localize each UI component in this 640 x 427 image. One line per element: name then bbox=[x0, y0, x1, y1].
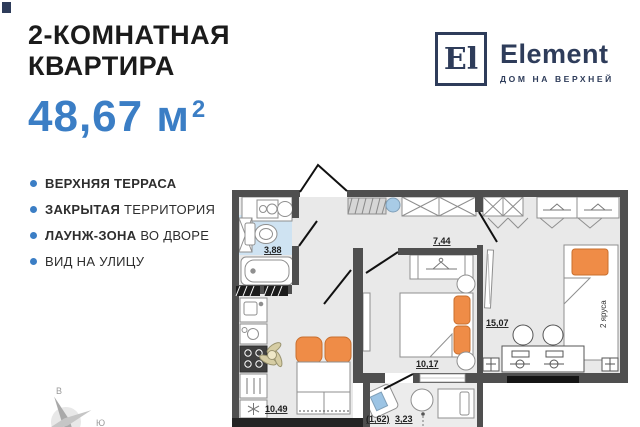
bullet-icon bbox=[30, 206, 37, 213]
hallway-area-label: 7,44 bbox=[433, 236, 451, 246]
nightstand-icon bbox=[457, 275, 475, 293]
logo-name: Element bbox=[500, 41, 614, 68]
feature-list: ВЕРХНЯЯ ТЕРРАСА ЗАКРЫТАЯ ТЕРРИТОРИЯ ЛАУН… bbox=[30, 170, 215, 274]
feature-bold: ВЕРХНЯЯ ТЕРРАСА bbox=[45, 176, 176, 191]
bunk-bed-label: 2 яруса bbox=[599, 300, 608, 328]
hallway bbox=[348, 197, 476, 216]
desk-chair-icon bbox=[543, 325, 563, 345]
window-band bbox=[507, 376, 579, 383]
feature-rest: ТЕРРИТОРИЯ bbox=[120, 202, 215, 217]
page-title: 2-КОМНАТНАЯ КВАРТИРА bbox=[28, 20, 230, 82]
pillow-icon bbox=[454, 326, 470, 354]
logo-text-block: Element ДОМ НА ВЕРХНЕЙ bbox=[500, 32, 614, 84]
title-line2: КВАРТИРА bbox=[28, 51, 230, 82]
area-value: 48,67 м bbox=[28, 92, 190, 141]
nightstand-icon bbox=[457, 352, 475, 370]
balcony-area-label: 3,23 bbox=[395, 414, 413, 424]
brand-logo: El Element ДОМ НА ВЕРХНЕЙ bbox=[435, 32, 614, 86]
dining-table-icon bbox=[297, 362, 350, 394]
feature-rest: ВИД НА УЛИЦУ bbox=[45, 254, 144, 269]
feature-item-closed-territory: ЗАКРЫТАЯ ТЕРРИТОРИЯ bbox=[30, 196, 215, 222]
kitchen-chair-icon bbox=[325, 337, 351, 363]
closet-hanger-icon bbox=[537, 197, 577, 218]
logo-box: El bbox=[435, 32, 487, 86]
title-line1: 2-КОМНАТНАЯ bbox=[28, 20, 230, 51]
bedroom-panel-icon bbox=[363, 293, 370, 351]
balcony-table-icon bbox=[411, 389, 433, 411]
radiator-icon bbox=[483, 358, 499, 371]
compass-rose: В Ю bbox=[28, 380, 112, 427]
closet-hanger-icon bbox=[577, 197, 619, 218]
area-superscript: 2 bbox=[192, 96, 206, 123]
bedroom-window bbox=[420, 374, 465, 382]
feature-item-street-view: ВИД НА УЛИЦУ bbox=[30, 248, 215, 274]
kitchen-area-label: 10,49 bbox=[265, 404, 288, 414]
flyer-page: 2-КОМНАТНАЯ КВАРТИРА 48,67 м2 El Element… bbox=[0, 0, 640, 427]
entrance-door-icon bbox=[300, 165, 347, 192]
logo-mark: El bbox=[444, 42, 478, 77]
logo-tagline: ДОМ НА ВЕРХНЕЙ bbox=[500, 74, 614, 84]
bedroom-area-label: 10,17 bbox=[416, 359, 439, 369]
bathroom-area-label: 3,88 bbox=[264, 245, 282, 255]
bathroom-sink-icon bbox=[278, 202, 293, 217]
compass-east-label: В bbox=[56, 386, 62, 396]
feature-item-terrace: ВЕРХНЯЯ ТЕРРАСА bbox=[30, 170, 215, 196]
apartment-area: 48,67 м2 bbox=[28, 92, 206, 142]
kitchen-chair-icon bbox=[296, 337, 322, 363]
desk-icon bbox=[502, 346, 584, 372]
bullet-icon bbox=[30, 232, 37, 239]
toilet-icon bbox=[245, 223, 255, 245]
feature-bold: ЛАУНЖ-ЗОНА bbox=[45, 228, 136, 243]
bullet-icon bbox=[30, 258, 37, 265]
compass-south-label: Ю bbox=[96, 418, 105, 427]
pillow-icon bbox=[454, 296, 470, 324]
balcony-reduced-area-label: (1,62) bbox=[366, 414, 390, 424]
floorplan: 3,88 7,44 10,17 15,07 10,49 (1,62) 3,23 … bbox=[230, 160, 630, 427]
corner-brand-mark bbox=[2, 2, 11, 13]
desk-chair-icon bbox=[513, 325, 533, 345]
feature-rest: ВО ДВОРЕ bbox=[136, 228, 209, 243]
pillow-icon bbox=[572, 249, 608, 275]
shoe-rack-icon bbox=[348, 198, 386, 214]
feature-item-lounge-zone: ЛАУНЖ-ЗОНА ВО ДВОРЕ bbox=[30, 222, 215, 248]
living-area-label: 15,07 bbox=[486, 318, 509, 328]
pouf-icon bbox=[386, 198, 400, 212]
bullet-icon bbox=[30, 180, 37, 187]
radiator-icon bbox=[602, 358, 618, 371]
feature-bold: ЗАКРЫТАЯ bbox=[45, 202, 120, 217]
